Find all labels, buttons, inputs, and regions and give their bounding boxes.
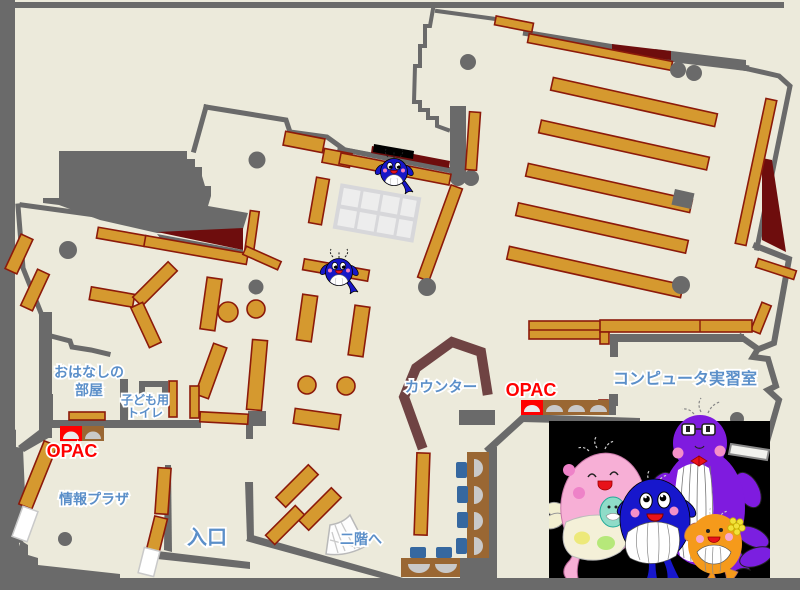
svg-text:OPAC: OPAC	[47, 441, 98, 461]
svg-text:トイレ: トイレ	[127, 406, 163, 420]
svg-text:カウンター: カウンター	[405, 379, 478, 396]
svg-text:おはなしの: おはなしの	[54, 364, 124, 380]
svg-text:コンピュータ実習室: コンピュータ実習室	[613, 369, 757, 388]
svg-text:二階へ: 二階へ	[340, 531, 382, 547]
svg-text:子ども用: 子ども用	[121, 393, 169, 407]
svg-text:入口: 入口	[187, 526, 227, 549]
svg-text:OPAC: OPAC	[506, 380, 557, 400]
svg-text:情報プラザ: 情報プラザ	[59, 491, 129, 507]
svg-text:部屋: 部屋	[75, 382, 103, 398]
